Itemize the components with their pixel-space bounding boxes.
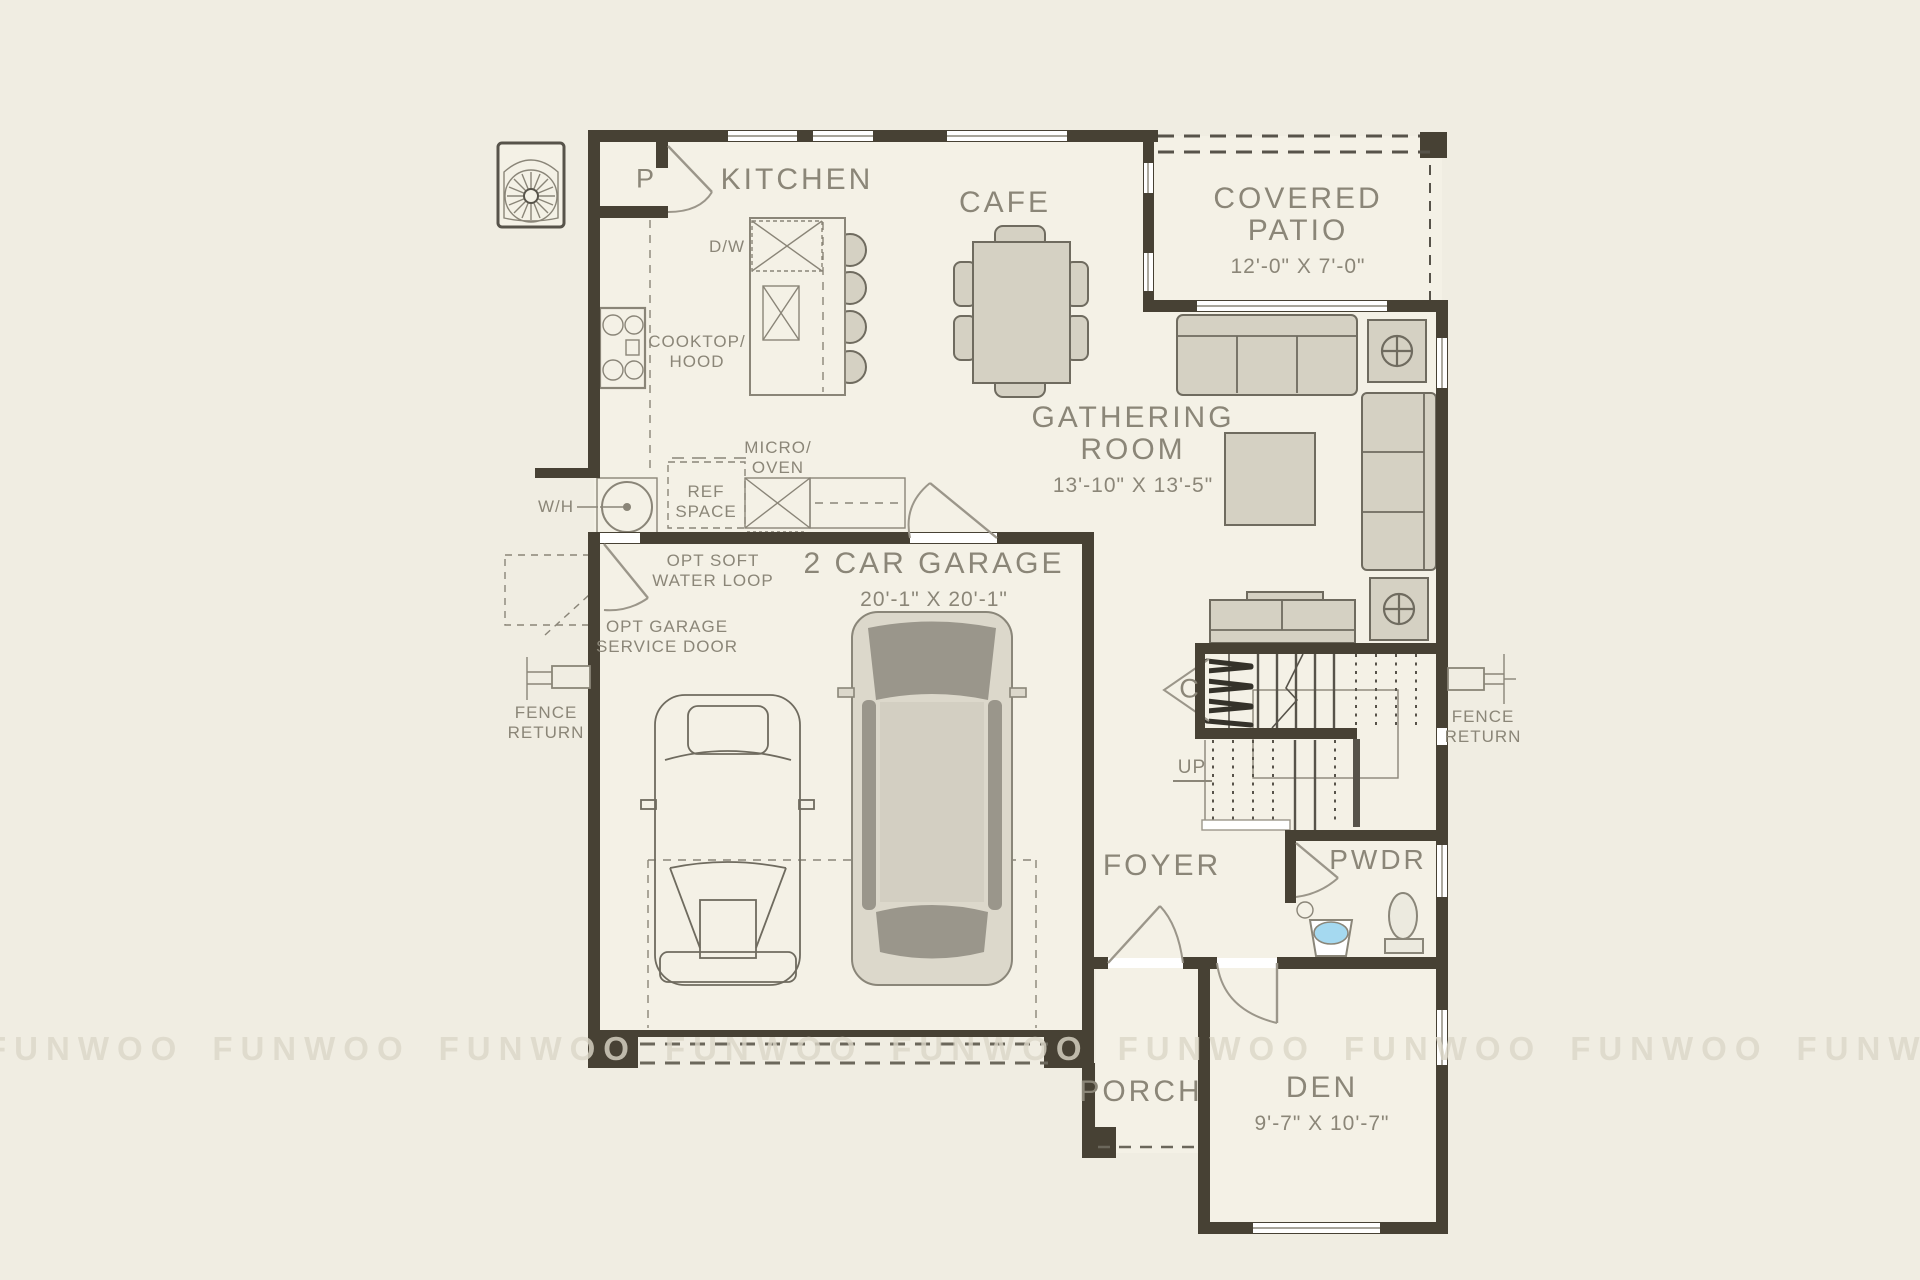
watermark-text: FUNWOO bbox=[439, 1030, 637, 1067]
watermark-text: FUNWOO bbox=[891, 1030, 1089, 1067]
watermark-text: FUNWOO bbox=[665, 1030, 863, 1067]
fence-return-right-label: FENCE RETURN bbox=[1445, 707, 1522, 747]
room-label-gathering: GATHERING ROOM 13'-10" X 13'-5" bbox=[1031, 402, 1234, 502]
cooktop-label: COOKTOP/ HOOD bbox=[648, 332, 745, 372]
fence-right-line1: FENCE bbox=[1452, 707, 1515, 726]
fence-left-line1: FENCE bbox=[515, 703, 578, 722]
watermark-text: FUNWOO bbox=[1570, 1030, 1768, 1067]
gathering-line2: ROOM bbox=[1080, 433, 1185, 466]
ref-line2: SPACE bbox=[675, 502, 736, 521]
watermark: FUNWOOFUNWOOFUNWOOFUNWOOFUNWOOFUNWOOFUNW… bbox=[0, 1030, 1920, 1068]
gathering-dims: 13'-10" X 13'-5" bbox=[1031, 470, 1234, 502]
ref-space-label: REF SPACE bbox=[675, 482, 736, 522]
fence-return-right bbox=[1448, 654, 1516, 704]
room-label-porch: PORCH bbox=[1079, 1076, 1202, 1108]
opt-soft-line1: OPT SOFT bbox=[667, 551, 760, 570]
opt-soft-line2: WATER LOOP bbox=[652, 571, 773, 590]
watermark-text: FUNWOO bbox=[1118, 1030, 1316, 1067]
watermark-text: FUNWOO bbox=[1797, 1030, 1920, 1067]
opt-garage-label: OPT GARAGE SERVICE DOOR bbox=[596, 617, 738, 657]
room-label-cafe: CAFE bbox=[959, 187, 1051, 219]
micro-line1: MICRO/ bbox=[744, 438, 811, 457]
fence-return-left bbox=[527, 657, 590, 700]
fence-return-left-label: FENCE RETURN bbox=[508, 703, 585, 743]
covered-patio-dims: 12'-0" X 7'-0" bbox=[1213, 251, 1382, 283]
ref-line1: REF bbox=[688, 482, 725, 501]
garage-name: 2 CAR GARAGE bbox=[803, 547, 1064, 580]
cooktop-line1: COOKTOP/ bbox=[648, 332, 745, 351]
room-label-garage: 2 CAR GARAGE 20'-1" X 20'-1" bbox=[803, 548, 1064, 616]
water-heater-label: W/H bbox=[538, 497, 574, 517]
dishwasher-label: D/W bbox=[709, 237, 745, 257]
car-suv bbox=[838, 612, 1026, 985]
covered-patio-line1: COVERED bbox=[1213, 182, 1382, 215]
up-label: UP bbox=[1178, 758, 1206, 778]
watermark-text: FUNWOO bbox=[0, 1030, 184, 1067]
room-label-foyer: FOYER bbox=[1103, 850, 1221, 882]
den-name: DEN bbox=[1286, 1071, 1358, 1104]
micro-oven-label: MICRO/ OVEN bbox=[744, 438, 811, 478]
room-label-covered-patio: COVERED PATIO 12'-0" X 7'-0" bbox=[1213, 183, 1382, 283]
cooktop-line2: HOOD bbox=[670, 352, 725, 371]
covered-patio-line2: PATIO bbox=[1248, 214, 1349, 247]
opt-garage-line2: SERVICE DOOR bbox=[596, 637, 738, 656]
room-label-pwdr: PWDR bbox=[1329, 844, 1427, 876]
den-dims: 9'-7" X 10'-7" bbox=[1255, 1108, 1390, 1140]
garage-dims: 20'-1" X 20'-1" bbox=[803, 584, 1064, 616]
watermark-text: FUNWOO bbox=[1344, 1030, 1542, 1067]
fence-right-line2: RETURN bbox=[1445, 727, 1522, 746]
room-label-den: DEN 9'-7" X 10'-7" bbox=[1255, 1072, 1390, 1140]
closet-letter: C bbox=[1179, 674, 1199, 705]
floorplan-page: KITCHEN CAFE COVERED PATIO 12'-0" X 7'-0… bbox=[0, 0, 1920, 1280]
micro-line2: OVEN bbox=[752, 458, 804, 477]
room-label-kitchen: KITCHEN bbox=[721, 164, 874, 196]
opt-soft-label: OPT SOFT WATER LOOP bbox=[652, 551, 773, 591]
pantry-letter: P bbox=[636, 164, 654, 195]
opt-garage-line1: OPT GARAGE bbox=[606, 617, 728, 636]
cafe-table bbox=[954, 226, 1088, 397]
gathering-line1: GATHERING bbox=[1031, 401, 1234, 434]
compass-icon bbox=[498, 143, 564, 227]
watermark-text: FUNWOO bbox=[212, 1030, 410, 1067]
fence-left-line2: RETURN bbox=[508, 723, 585, 742]
